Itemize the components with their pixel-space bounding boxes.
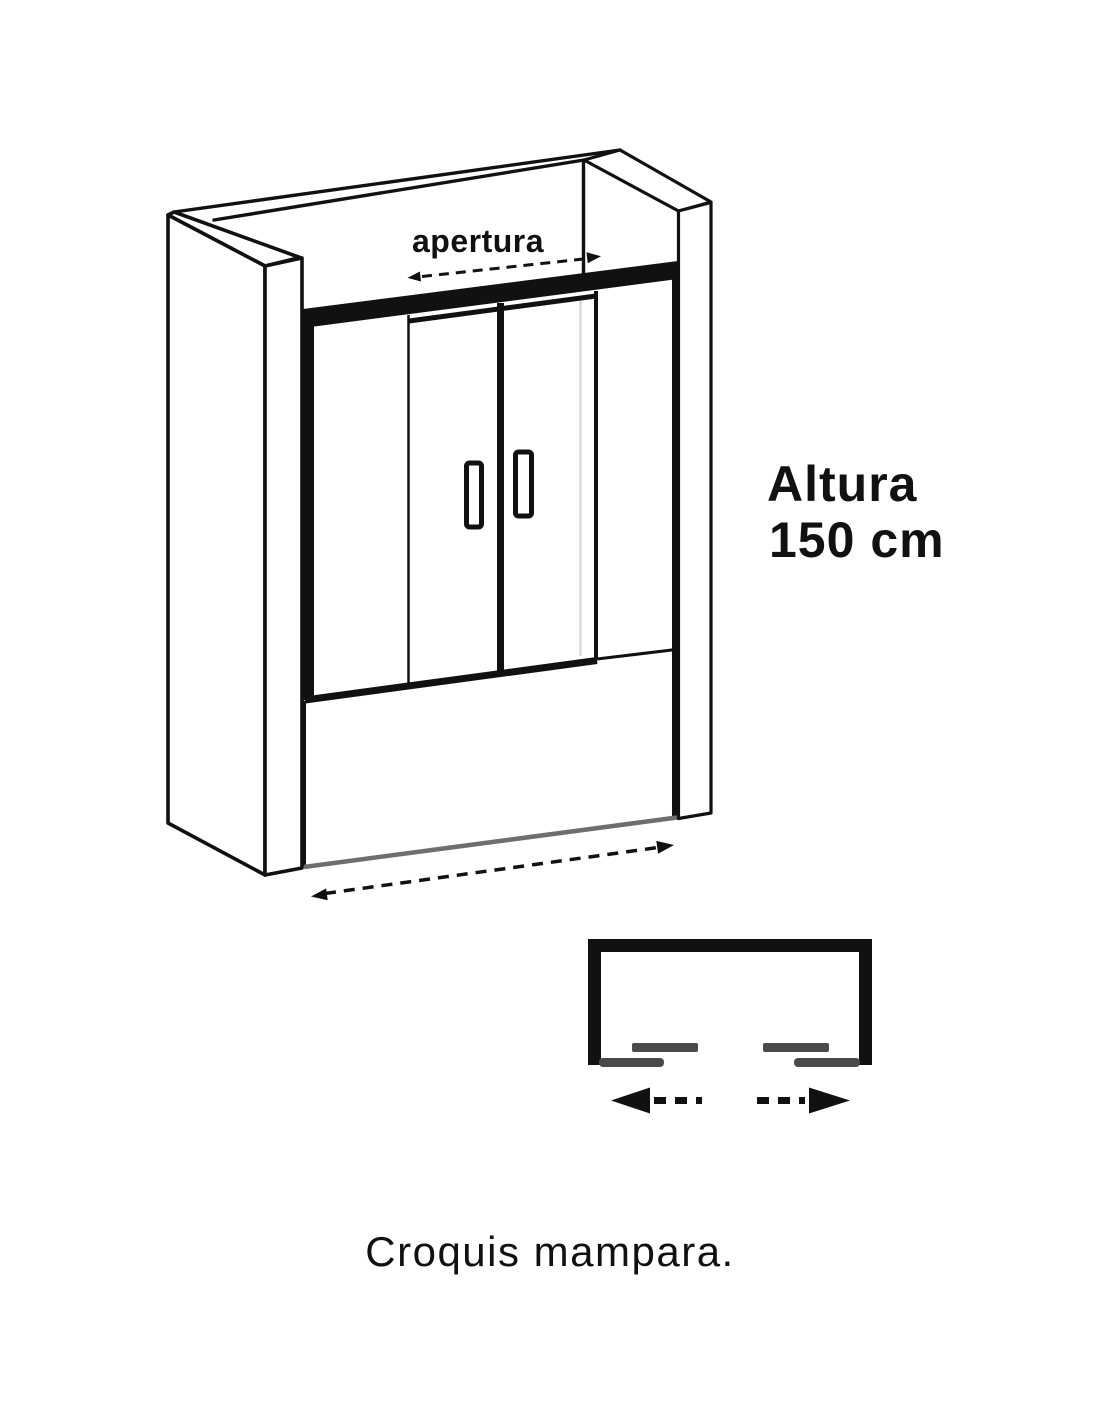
- height-label: Altura 150 cm: [767, 456, 945, 568]
- opening-label: apertura: [412, 223, 544, 259]
- right-door-handle: [516, 452, 532, 516]
- width-arrowhead-left: [311, 888, 328, 900]
- width-arrowhead-right: [656, 841, 674, 854]
- croquis-page: apertura Altura 150 cm: [0, 0, 1100, 1422]
- slide-direction-arrows: [611, 1088, 850, 1114]
- apertura-arrowhead-right: [587, 252, 602, 263]
- schematic-frame: [588, 939, 872, 1065]
- left-pillar: [168, 212, 302, 875]
- right-pillar-top-face: [584, 150, 711, 211]
- top-view-schematic: [588, 939, 872, 1114]
- height-label-line2: 150 cm: [769, 512, 945, 568]
- left-pillar-front-face: [265, 258, 302, 875]
- schematic-frame-left: [588, 939, 601, 1065]
- right-pillar-front-face: [679, 203, 712, 819]
- schematic-panel-outer-right: [794, 1058, 860, 1067]
- slide-right-arrowhead: [809, 1088, 850, 1114]
- back-wall-top-outer-edge: [174, 150, 620, 212]
- back-wall-top-inner-edge: [214, 160, 584, 220]
- slide-right-arrow-icon: [757, 1088, 850, 1114]
- left-pillar-side-face: [168, 215, 265, 875]
- schematic-panels: [599, 1043, 860, 1067]
- caption: Croquis mampara.: [365, 1228, 734, 1275]
- sketch-3d: [168, 150, 711, 900]
- bath-screen-diagram: apertura Altura 150 cm: [0, 0, 1100, 1422]
- slide-left-arrow-icon: [611, 1088, 702, 1114]
- schematic-panel-outer-left: [599, 1058, 664, 1067]
- schematic-frame-top: [588, 939, 872, 952]
- left-wall-profile: [303, 326, 314, 701]
- left-door-handle: [467, 463, 482, 527]
- height-label-line1: Altura: [767, 456, 918, 512]
- schematic-panel-inner-left: [632, 1043, 698, 1052]
- schematic-panel-inner-right: [763, 1043, 829, 1052]
- apertura-arrowhead-left: [408, 272, 422, 282]
- schematic-frame-right: [859, 939, 872, 1065]
- glass-and-tub-panel: [303, 278, 679, 868]
- slide-left-arrowhead: [611, 1088, 650, 1114]
